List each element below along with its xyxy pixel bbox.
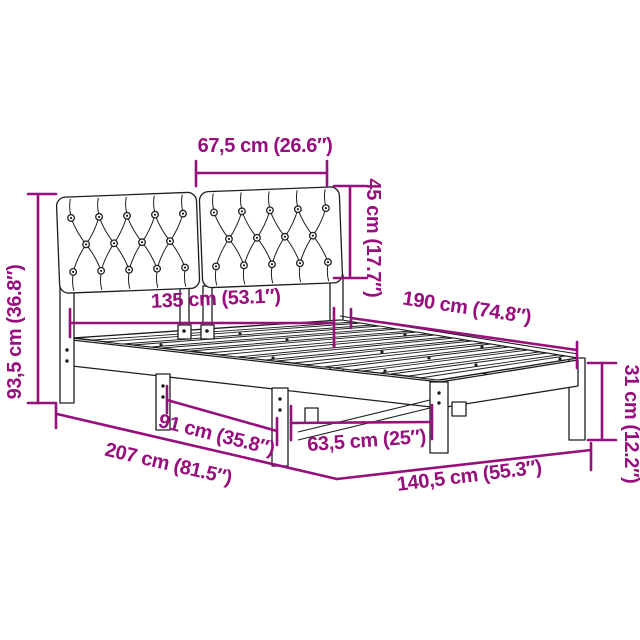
label-total-height: 93,5 cm (36.8″): [4, 265, 26, 400]
label-panel-width: 67,5 cm (26.6″): [198, 135, 333, 157]
label-total-length: 207 cm (81.5″): [103, 439, 234, 490]
dimension-diagram: 67,5 cm (26.6″) 45 cm (17.7″) 93,5 cm (3…: [0, 0, 640, 640]
bed-frame-illustration: 67,5 cm (26.6″) 45 cm (17.7″) 93,5 cm (3…: [0, 0, 640, 640]
dim-headboard-panel-width: 67,5 cm (26.6″): [196, 135, 332, 186]
head-near-leg: [60, 285, 74, 403]
label-slat-width: 135 cm (53.1″): [151, 285, 281, 313]
label-frame-height: 31 cm (12.2″): [620, 365, 640, 484]
dim-total-length: 207 cm (81.5″): [56, 404, 337, 489]
dim-frame-height: 31 cm (12.2″): [588, 363, 640, 483]
label-bed-length: 190 cm (74.8″): [401, 288, 532, 329]
label-leg-gap-head: 91 cm (35.8″): [156, 410, 277, 460]
headboard: [56, 187, 342, 294]
mid-leg-2: [272, 388, 288, 466]
label-headboard-height: 45 cm (17.7″): [362, 179, 384, 298]
dim-total-height: 93,5 cm (36.8″): [4, 194, 56, 403]
label-leg-gap-foot: 63,5 cm (25″): [307, 426, 427, 456]
dim-leg-gap-head: 91 cm (35.8″): [156, 386, 277, 460]
label-total-width: 140,5 cm (55.3″): [396, 456, 543, 496]
